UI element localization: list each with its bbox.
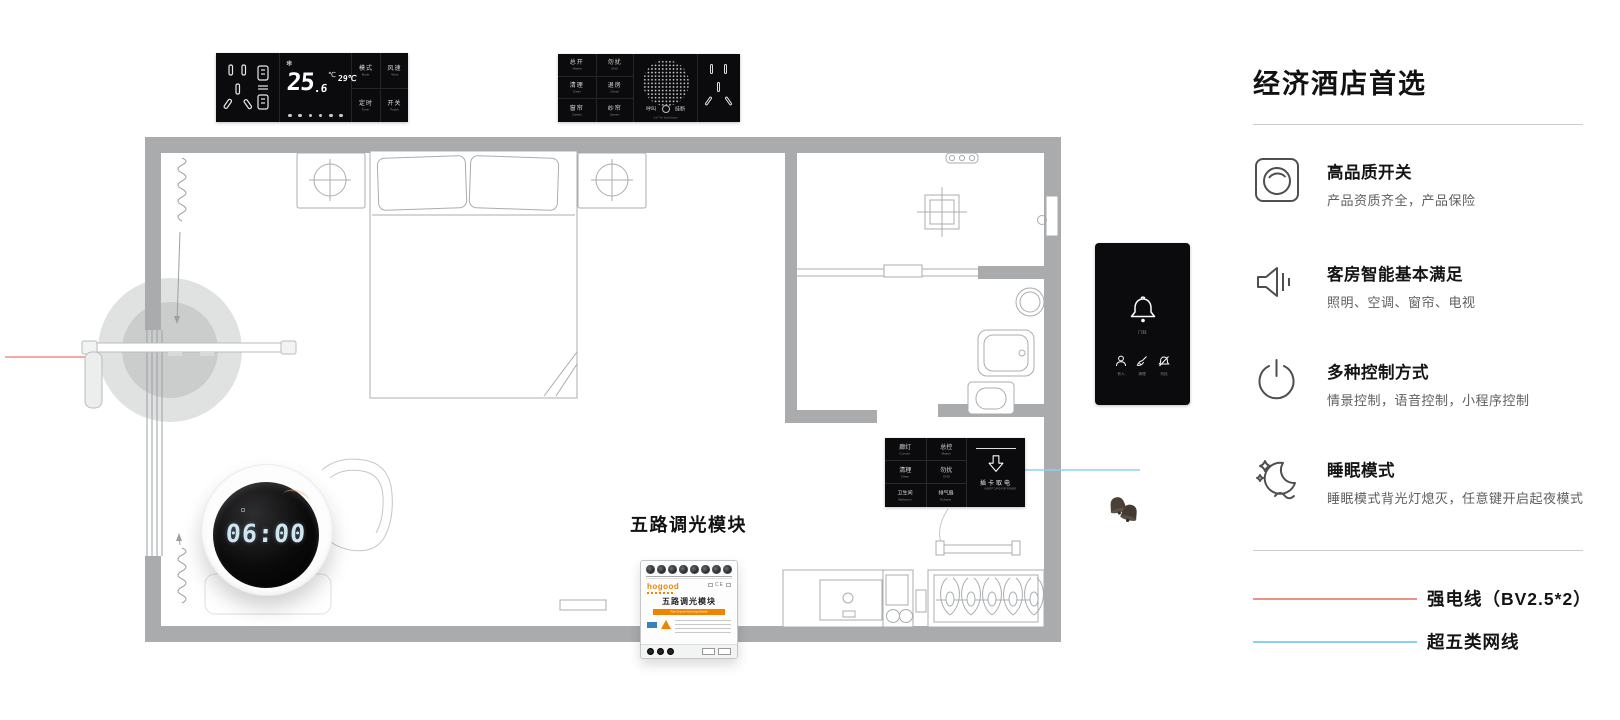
indicator-dnd: 勿扰	[1158, 355, 1170, 378]
outlet-slot	[724, 64, 727, 74]
clock-time: 06:00	[212, 519, 320, 548]
doorbell-chimes	[1108, 496, 1139, 524]
thermostat-button-power: 开关Power	[380, 88, 408, 123]
bench	[560, 600, 606, 610]
feature-control-methods: 多种控制方式 情景控制，语音控制，小程序控制	[1253, 356, 1598, 409]
thermostat-display: ❄ 25.6℃29℃	[280, 53, 352, 122]
certification-marks: CE	[708, 582, 731, 588]
wall-left-upper	[145, 137, 161, 330]
pillow-left	[377, 155, 467, 210]
curtain-symbol-bottom	[176, 533, 186, 603]
thermostat-button-fan: 风速Wind	[380, 53, 408, 88]
wall-bathroom	[785, 153, 797, 415]
feature-title: 客房智能基本满足	[1327, 261, 1476, 285]
alarm-indicator-icon	[241, 508, 245, 512]
cooling-mode-icon: ❄	[286, 59, 293, 68]
legend-power-wire: 强电线（BV2.5*2）	[1253, 586, 1598, 611]
call-button: 呼叫	[646, 105, 656, 113]
entry-door	[936, 509, 1020, 555]
bathroom-door	[1046, 196, 1058, 236]
label-chip	[647, 622, 657, 628]
shower-partition	[797, 265, 978, 277]
feature-title: 多种控制方式	[1327, 359, 1530, 383]
card-switch-panel: 廊灯Corridor 总控Master 清理Clean 勿扰DND 卫生间Bat…	[885, 438, 1025, 507]
brand-logo: hogood	[647, 582, 679, 594]
intercom-section: 呼叫 挂断 Call The Switchboard	[634, 54, 698, 122]
card-slot-area: 插卡取电 INSERT CARD FOR POWER	[967, 438, 1025, 507]
speaker-grille-icon	[643, 60, 689, 106]
terminal-block	[718, 648, 731, 655]
card-button-master: 总控Master	[926, 438, 967, 461]
wall-bathroom-bottom	[785, 410, 877, 423]
door-jamb	[916, 590, 926, 612]
alarm-clock: 06:00	[201, 464, 333, 596]
module-info	[641, 615, 737, 634]
thermostat-buttons: 模式Mode 风速Wind 定时Timer 开关Power	[352, 53, 408, 122]
speaker-icon	[1253, 258, 1301, 306]
feature-title: 睡眠模式	[1327, 457, 1584, 481]
insert-card-text: 插卡取电	[967, 478, 1025, 487]
curtain-motor-body	[85, 352, 102, 408]
cert-badge-icon	[708, 583, 713, 587]
socket-section	[216, 53, 280, 122]
furniture	[205, 151, 1058, 627]
wall-top	[145, 137, 1061, 153]
bell-slash-icon	[1158, 355, 1170, 367]
thermostat-panel: ❄ 25.6℃29℃ 模式Mode 风速Wind 定时Timer 开关Power	[216, 53, 408, 122]
door-swing-arc	[940, 509, 948, 543]
service-button-sheer: 纱帘Screen	[596, 99, 634, 122]
outlet-slot	[717, 82, 720, 92]
service-button-master: 总开Master	[558, 54, 596, 77]
warning-triangle-icon	[661, 620, 671, 629]
temperature-unit: ℃	[328, 71, 336, 79]
feature-text: 睡眠模式 睡眠模式背光灯熄灭，任意键开启起夜模式	[1327, 454, 1584, 507]
feature-text: 客房智能基本满足 照明、空调、窗帘、电视	[1327, 258, 1476, 311]
sliding-door	[884, 265, 922, 277]
broom-icon	[1136, 355, 1148, 367]
feature-subtitle: 情景控制，语音控制，小程序控制	[1327, 390, 1530, 409]
hangup-button: 挂断	[674, 105, 684, 113]
service-button-curtain: 窗帘Curtain	[558, 99, 596, 122]
power-icon	[1253, 356, 1301, 404]
outlet-section	[698, 54, 740, 122]
dimmer-callout-label: 五路调光模块	[630, 511, 747, 537]
doorbell-label: 门铃	[1109, 328, 1176, 334]
thermostat-function-icons	[288, 114, 343, 118]
service-button-checkout: 退房Check	[596, 77, 634, 100]
legend-network-wire: 超五类网线	[1253, 629, 1598, 654]
service-buttons: 总开Master 勿扰DND 清理Clean 退房Check 窗帘Curtain…	[558, 54, 634, 122]
service-panel: 总开Master 勿扰DND 清理Clean 退房Check 窗帘Curtain…	[558, 54, 740, 122]
feature-title: 高品质开关	[1327, 159, 1476, 183]
divider	[1253, 550, 1583, 551]
power-wire-swatch	[1253, 598, 1417, 600]
service-button-dnd: 勿扰DND	[596, 54, 634, 77]
clock-face: 06:00	[213, 482, 319, 588]
insert-card-arrow-icon	[987, 454, 1005, 474]
indicator-cleanup: 清理	[1136, 355, 1148, 378]
card-slot-line	[976, 448, 1016, 449]
call-controls: 呼叫 挂断	[634, 104, 697, 113]
kitchen-counter	[783, 570, 913, 627]
outlet-slot	[710, 64, 713, 74]
module-title: 五路调光模块	[641, 596, 737, 607]
feature-quality-switch: 高品质开关 产品资质齐全，产品保险	[1253, 156, 1598, 209]
legend-label: 强电线（BV2.5*2）	[1427, 586, 1592, 611]
feature-subtitle: 产品资质齐全，产品保险	[1327, 190, 1476, 209]
card-button-bathroom: 卫生间Bathroom	[885, 484, 926, 507]
page-title: 经济酒店首选	[1253, 62, 1427, 101]
fine-print-lines	[675, 620, 731, 634]
feature-text: 多种控制方式 情景控制，语音控制，小程序控制	[1327, 356, 1530, 409]
wardrobe	[928, 570, 1044, 627]
card-button-clean: 清理Clean	[885, 461, 926, 484]
dimmer-module: hogood CE 五路调光模块 Five Channel Dimming Mo…	[640, 560, 738, 659]
moon-stars-icon	[1253, 454, 1301, 502]
doorbell-icon	[1126, 295, 1160, 325]
service-button-clean: 清理Clean	[558, 77, 596, 100]
card-button-corridor: 廊灯Corridor	[885, 438, 926, 461]
feature-room-intelligence: 客房智能基本满足 照明、空调、窗帘、电视	[1253, 258, 1598, 311]
card-panel-buttons: 廊灯Corridor 总控Master 清理Clean 勿扰DND 卫生间Bat…	[885, 438, 967, 507]
set-temperature-frac: .6	[313, 82, 327, 95]
bathtub	[978, 330, 1034, 376]
divider	[1253, 124, 1583, 125]
call-note: Call The Switchboard	[652, 117, 678, 120]
dimmer-terminals-top	[641, 561, 737, 576]
feature-subtitle: 照明、空调、窗帘、电视	[1327, 292, 1476, 311]
socket-icon	[216, 53, 280, 120]
wall-bottom	[145, 626, 1061, 642]
network-wire-swatch	[1253, 641, 1417, 643]
curtain-rail	[84, 343, 296, 352]
dimmer-terminals-bottom	[641, 644, 737, 658]
feature-sleep-mode: 睡眠模式 睡眠模式背光灯熄灭，任意键开启起夜模式	[1253, 454, 1598, 507]
card-button-dnd: 勿扰DND	[926, 461, 967, 484]
doorbell-panel: 门铃 有人 清理 勿扰	[1095, 243, 1190, 405]
shower-valve	[946, 153, 978, 163]
feature-subtitle: 睡眠模式背光灯熄灭，任意键开启起夜模式	[1327, 488, 1584, 507]
legend-label: 超五类网线	[1427, 629, 1520, 654]
ambient-temperature: 29℃	[338, 74, 357, 83]
person-icon	[1115, 355, 1127, 367]
card-button-exhaust: 排气扇Exhaust	[926, 484, 967, 507]
knob-switch-icon	[1253, 156, 1301, 204]
intercom-logo-icon	[662, 105, 670, 113]
wall-shower-divider	[978, 266, 1044, 279]
temperature-readout: 25.6℃29℃	[287, 70, 357, 95]
pillow-right	[469, 155, 559, 210]
cert-badge-icon	[726, 583, 731, 587]
terminal-block	[702, 648, 715, 655]
door-indicators: 有人 清理 勿扰	[1095, 355, 1190, 378]
outlet-slot	[724, 96, 732, 106]
feature-text: 高品质开关 产品资质齐全，产品保险	[1327, 156, 1476, 209]
set-temperature: 25	[286, 70, 315, 94]
indicator-occupied: 有人	[1115, 355, 1127, 378]
outlet-slot	[704, 96, 712, 106]
insert-card-text-en: INSERT CARD FOR POWER	[984, 488, 1007, 490]
